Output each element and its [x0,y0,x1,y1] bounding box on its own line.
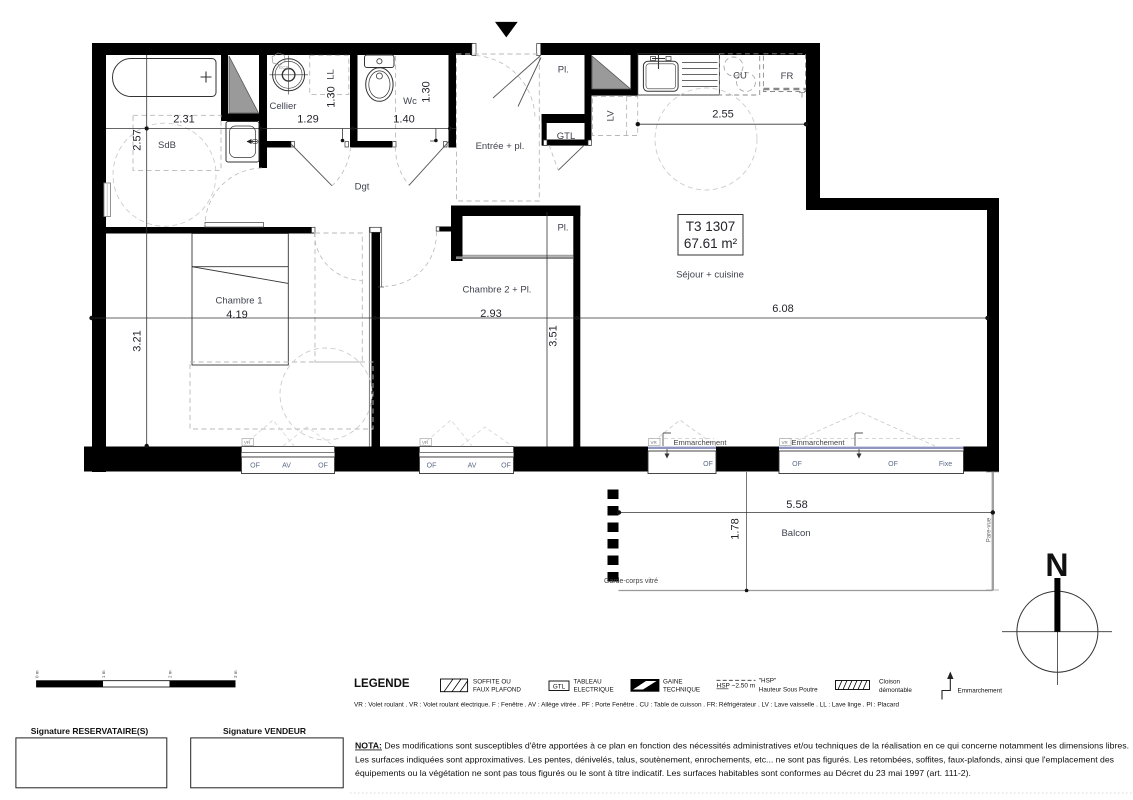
svg-text:Chambre 2 + Pl.: Chambre 2 + Pl. [463,285,532,296]
svg-text:ECS: ECS [279,65,289,71]
svg-text:SdB: SdB [158,140,176,151]
svg-text:Garde-corps vitré: Garde-corps vitré [604,578,658,585]
svg-text:2.57: 2.57 [132,129,144,150]
svg-text:Entrée + pl.: Entrée + pl. [476,141,525,152]
svg-text:AV: AV [468,463,477,470]
svg-text:équipements ou la végétation n: équipements ou la végétation ne sont pas… [355,768,971,778]
svg-text:OF: OF [501,463,511,470]
svg-text:0 m: 0 m [35,670,40,678]
svg-text:5.58: 5.58 [786,499,807,511]
svg-text:1.30: 1.30 [421,81,433,102]
svg-text:SOFFITE OU: SOFFITE OU [473,679,511,686]
svg-text:Emmarchement: Emmarchement [958,688,1003,695]
svg-text:2 m: 2 m [168,670,173,678]
svg-text:Pare-vue: Pare-vue [987,517,993,542]
svg-text:Signature VENDEUR: Signature VENDEUR [223,726,306,736]
svg-text:1.40: 1.40 [393,114,414,126]
svg-text:"HSP": "HSP" [759,678,776,685]
svg-text:CU: CU [733,71,747,82]
svg-text:LL: LL [326,69,337,80]
svg-text:LEGENDE: LEGENDE [354,678,410,690]
svg-text:1.29: 1.29 [297,114,318,126]
svg-text:Dgt: Dgt [355,182,370,193]
svg-text:GAINE: GAINE [663,679,683,686]
svg-text:Pl.: Pl. [558,64,569,75]
svg-text:Emmarchement: Emmarchement [792,438,846,447]
svg-text:AV: AV [282,463,291,470]
svg-text:Signature RESERVATAIRE(S): Signature RESERVATAIRE(S) [31,726,149,736]
svg-text:NOTA: Des modifications sont s: NOTA: Des modifications sont susceptible… [355,741,1129,751]
svg-text:FR: FR [781,71,794,82]
svg-text:67.61 m²: 67.61 m² [684,236,738,251]
svg-text:Pl.: Pl. [557,223,568,234]
svg-text:Emmarchement: Emmarchement [674,438,728,447]
svg-text:6.08: 6.08 [772,303,793,315]
svg-text:3 m: 3 m [233,670,238,678]
svg-text:VR: VR [651,440,658,445]
svg-text:OF: OF [427,463,437,470]
svg-text:2.55: 2.55 [712,109,733,121]
svg-text:OF: OF [888,461,898,468]
svg-text:FAUX PLAFOND: FAUX PLAFOND [473,687,521,694]
svg-text:2.93: 2.93 [480,308,501,320]
svg-text:1 m: 1 m [101,670,106,678]
svg-text:TECHNIQUE: TECHNIQUE [663,687,700,694]
svg-text:3.51: 3.51 [548,325,560,346]
svg-text:4.19: 4.19 [226,309,247,321]
svg-text:VR : Volet roulant . VR : Vole: VR : Volet roulant . VR : Volet roulant … [354,702,899,709]
svg-text:2.31: 2.31 [173,114,194,126]
svg-text:VR: VR [782,440,789,445]
svg-text:LV: LV [606,110,617,122]
svg-text:Balcon: Balcon [781,528,810,539]
svg-text:GTL: GTL [553,683,566,690]
svg-text:Séjour + cuisine: Séjour + cuisine [676,270,744,281]
svg-text:OF: OF [318,463,328,470]
svg-text:Les surfaces indiquées sont ap: Les surfaces indiquées sont approximativ… [355,755,1114,765]
svg-text:N: N [1045,547,1068,583]
svg-text:ELECTRIQUE: ELECTRIQUE [574,687,614,694]
svg-text:TABLEAU: TABLEAU [574,679,603,686]
svg-text:T3 1307: T3 1307 [686,219,736,234]
svg-text:OF: OF [250,463,260,470]
svg-text:OF: OF [792,461,802,468]
svg-text:Hauteur Sous Poutre: Hauteur Sous Poutre [759,687,818,694]
svg-text:1.78: 1.78 [730,518,742,539]
svg-text:3.21: 3.21 [132,330,144,351]
svg-text:GTL: GTL [557,131,575,142]
svg-text:Cloison: Cloison [879,679,900,686]
svg-text:démontable: démontable [879,687,912,694]
svg-text:Wc: Wc [403,96,417,107]
svg-text:Cellier: Cellier [270,101,297,112]
svg-text:Chambre 1: Chambre 1 [216,296,263,307]
svg-text:OF: OF [703,461,713,468]
svg-text:Fixe: Fixe [939,461,952,468]
svg-text:1.30: 1.30 [326,86,338,107]
